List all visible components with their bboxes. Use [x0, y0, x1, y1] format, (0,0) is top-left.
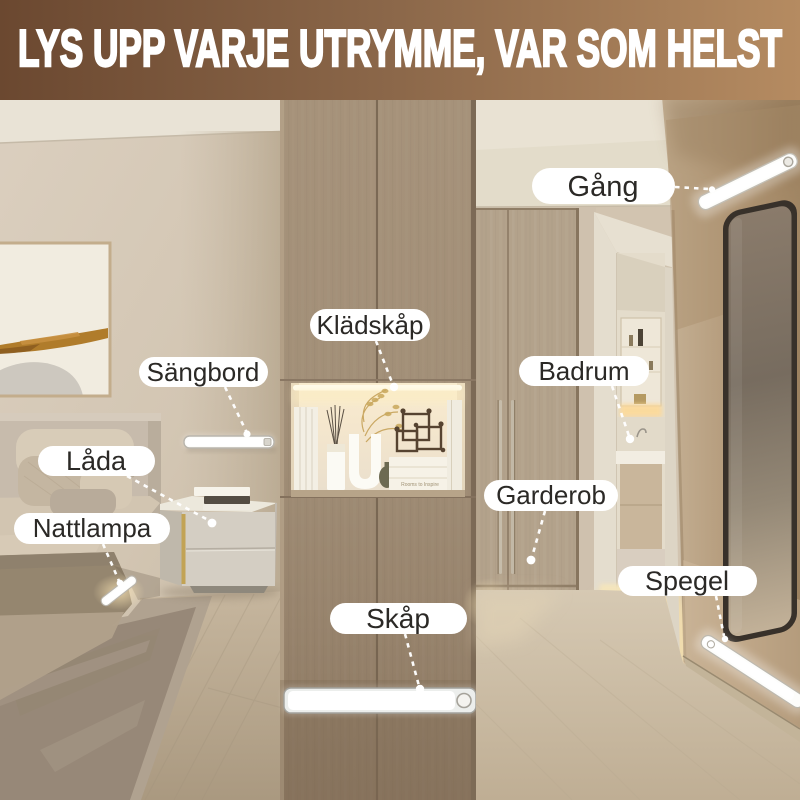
svg-text:Klädskåp: Klädskåp [317, 310, 424, 340]
svg-text:Skåp: Skåp [366, 603, 430, 634]
svg-text:Sängbord: Sängbord [147, 357, 260, 387]
svg-text:Garderob: Garderob [496, 480, 606, 510]
svg-text:Gång: Gång [568, 171, 639, 203]
svg-text:Låda: Låda [66, 446, 127, 476]
svg-text:Badrum: Badrum [538, 356, 629, 386]
svg-text:Rooms to Inspire: Rooms to Inspire [401, 482, 439, 488]
svg-text:Nattlampa: Nattlampa [33, 513, 152, 543]
svg-text:LYS UPP VARJE UTRYMME, VAR SOM: LYS UPP VARJE UTRYMME, VAR SOM HELST [18, 20, 782, 78]
svg-text:Spegel: Spegel [645, 566, 729, 596]
